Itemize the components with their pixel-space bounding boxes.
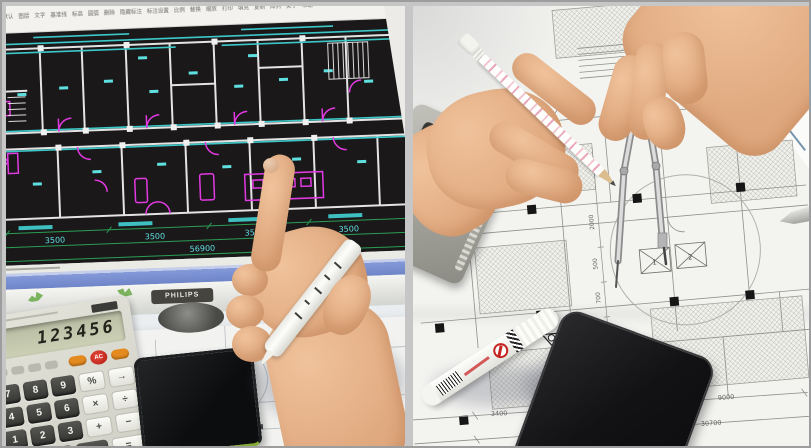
calc-key[interactable]: 7 bbox=[6, 383, 21, 406]
calc-key[interactable]: 3 bbox=[57, 420, 84, 443]
marker-red-text bbox=[464, 356, 490, 376]
memory-key[interactable] bbox=[6, 368, 8, 378]
dim-3500-2: 3500 bbox=[145, 232, 166, 242]
menu-item[interactable]: 标注设置 bbox=[147, 6, 169, 15]
menu-item[interactable]: 复制 bbox=[254, 6, 265, 11]
memory-key[interactable] bbox=[28, 363, 42, 373]
calc-key[interactable]: 6 bbox=[54, 397, 81, 420]
calc-key[interactable]: 1 bbox=[6, 429, 29, 446]
menu-item[interactable]: 比例 bbox=[174, 6, 185, 14]
menu-item[interactable]: 标高 bbox=[72, 10, 83, 18]
calc-key[interactable]: 5 bbox=[26, 402, 53, 425]
memory-key[interactable] bbox=[44, 360, 58, 370]
elevator-2-label: 2 bbox=[688, 253, 693, 261]
menu-item[interactable]: 隐藏标注 bbox=[120, 7, 142, 16]
calculator-keypad: 789%→456×÷123+−000.= bbox=[6, 365, 147, 446]
dim-3500-4: 3500 bbox=[338, 224, 359, 234]
calc-key[interactable]: % bbox=[78, 370, 107, 393]
dim-3400: 3400 bbox=[491, 409, 508, 418]
fingernail bbox=[263, 158, 279, 173]
calc-key[interactable]: × bbox=[81, 393, 110, 416]
menu-item[interactable]: 图层 bbox=[18, 12, 29, 20]
menu-item[interactable]: 打印 bbox=[222, 6, 233, 12]
menu-item[interactable]: 圆弧 bbox=[88, 9, 99, 17]
dim-30700: 30700 bbox=[701, 419, 722, 428]
calc-key[interactable]: 00 bbox=[41, 445, 75, 446]
dim-total: 56900 bbox=[190, 244, 216, 254]
menu-item[interactable]: 阵列 bbox=[270, 6, 281, 10]
leaf-decal-icon bbox=[26, 290, 44, 304]
calc-key[interactable]: 8 bbox=[22, 379, 49, 402]
menu-item[interactable]: 帮助 bbox=[302, 6, 313, 9]
cad-screen[interactable]: 3500 3500 3500 3500 56900 bbox=[6, 18, 405, 266]
orange-key[interactable] bbox=[110, 348, 129, 361]
calc-key[interactable]: . bbox=[76, 439, 110, 446]
dim-9000: 9000 bbox=[718, 393, 735, 402]
vdim-2000: 2000 bbox=[588, 214, 596, 230]
calculator-display-value: 123456 bbox=[36, 317, 118, 349]
menu-item[interactable]: 默认 bbox=[6, 12, 14, 20]
orange-key[interactable] bbox=[68, 354, 87, 367]
calc-key[interactable]: ÷ bbox=[111, 388, 140, 411]
calc-key[interactable]: 4 bbox=[6, 406, 25, 429]
calc-key[interactable]: 2 bbox=[30, 424, 57, 446]
cad-floorplan-drawing: 3500 3500 3500 3500 56900 bbox=[6, 18, 405, 266]
menu-item[interactable]: 删除 bbox=[104, 8, 115, 16]
prohibition-icon bbox=[490, 340, 511, 361]
left-photo-panel: 默认图层文字基准线标高圆弧删除隐藏标注标注设置比例替换缩放打印填充复制阵列关于帮… bbox=[6, 6, 405, 446]
folded-finger bbox=[226, 295, 264, 329]
calc-key[interactable]: 9 bbox=[50, 375, 77, 398]
cad-walls bbox=[6, 34, 405, 220]
menu-item[interactable]: 基准线 bbox=[50, 10, 67, 19]
philips-logo: PHILIPS bbox=[151, 288, 213, 304]
ac-key[interactable]: AC bbox=[89, 349, 108, 365]
smartphone-left[interactable] bbox=[133, 346, 263, 446]
calc-key[interactable]: + bbox=[85, 415, 114, 438]
right-photo-panel: 1 2 2000 500 700 9000 30700 bbox=[413, 6, 809, 446]
calc-key[interactable]: → bbox=[107, 365, 136, 388]
menu-item[interactable]: 关于 bbox=[286, 6, 297, 10]
cad-stairs bbox=[6, 42, 370, 122]
menu-item[interactable]: 替换 bbox=[190, 6, 201, 14]
dim-3500-1: 3500 bbox=[45, 235, 66, 245]
menu-item[interactable]: 缩放 bbox=[206, 6, 217, 13]
menu-item[interactable]: 文字 bbox=[34, 11, 45, 19]
memory-key[interactable] bbox=[11, 365, 25, 375]
photo-collage: 默认图层文字基准线标高圆弧删除隐藏标注标注设置比例替换缩放打印填充复制阵列关于帮… bbox=[0, 0, 811, 448]
menu-item[interactable]: 填充 bbox=[238, 6, 249, 12]
